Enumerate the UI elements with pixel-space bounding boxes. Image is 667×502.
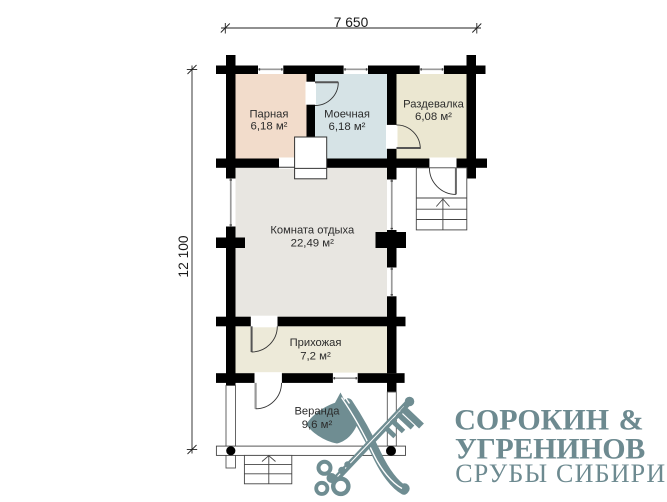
svg-text:6,18 м²: 6,18 м² [329,121,366,133]
svg-text:Комната отдыха: Комната отдыха [270,225,355,237]
svg-text:22,49 м²: 22,49 м² [291,237,335,249]
svg-text:Прихожая: Прихожая [290,337,342,349]
svg-text:6,18 м²: 6,18 м² [251,121,288,133]
svg-text:6,08 м²: 6,08 м² [415,111,452,123]
svg-text:7,2 м²: 7,2 м² [300,350,331,362]
svg-text:Парная: Парная [250,109,289,121]
svg-text:СРУБЫ СИБИРИ: СРУБЫ СИБИРИ [455,459,666,488]
svg-text:9,6 м²: 9,6 м² [302,419,333,431]
svg-text:12 100: 12 100 [176,235,191,278]
svg-text:7 650: 7 650 [334,15,369,30]
svg-text:Моечная: Моечная [324,109,370,121]
svg-text:Раздевалка: Раздевалка [403,98,465,110]
svg-text:Веранда: Веранда [294,406,340,418]
